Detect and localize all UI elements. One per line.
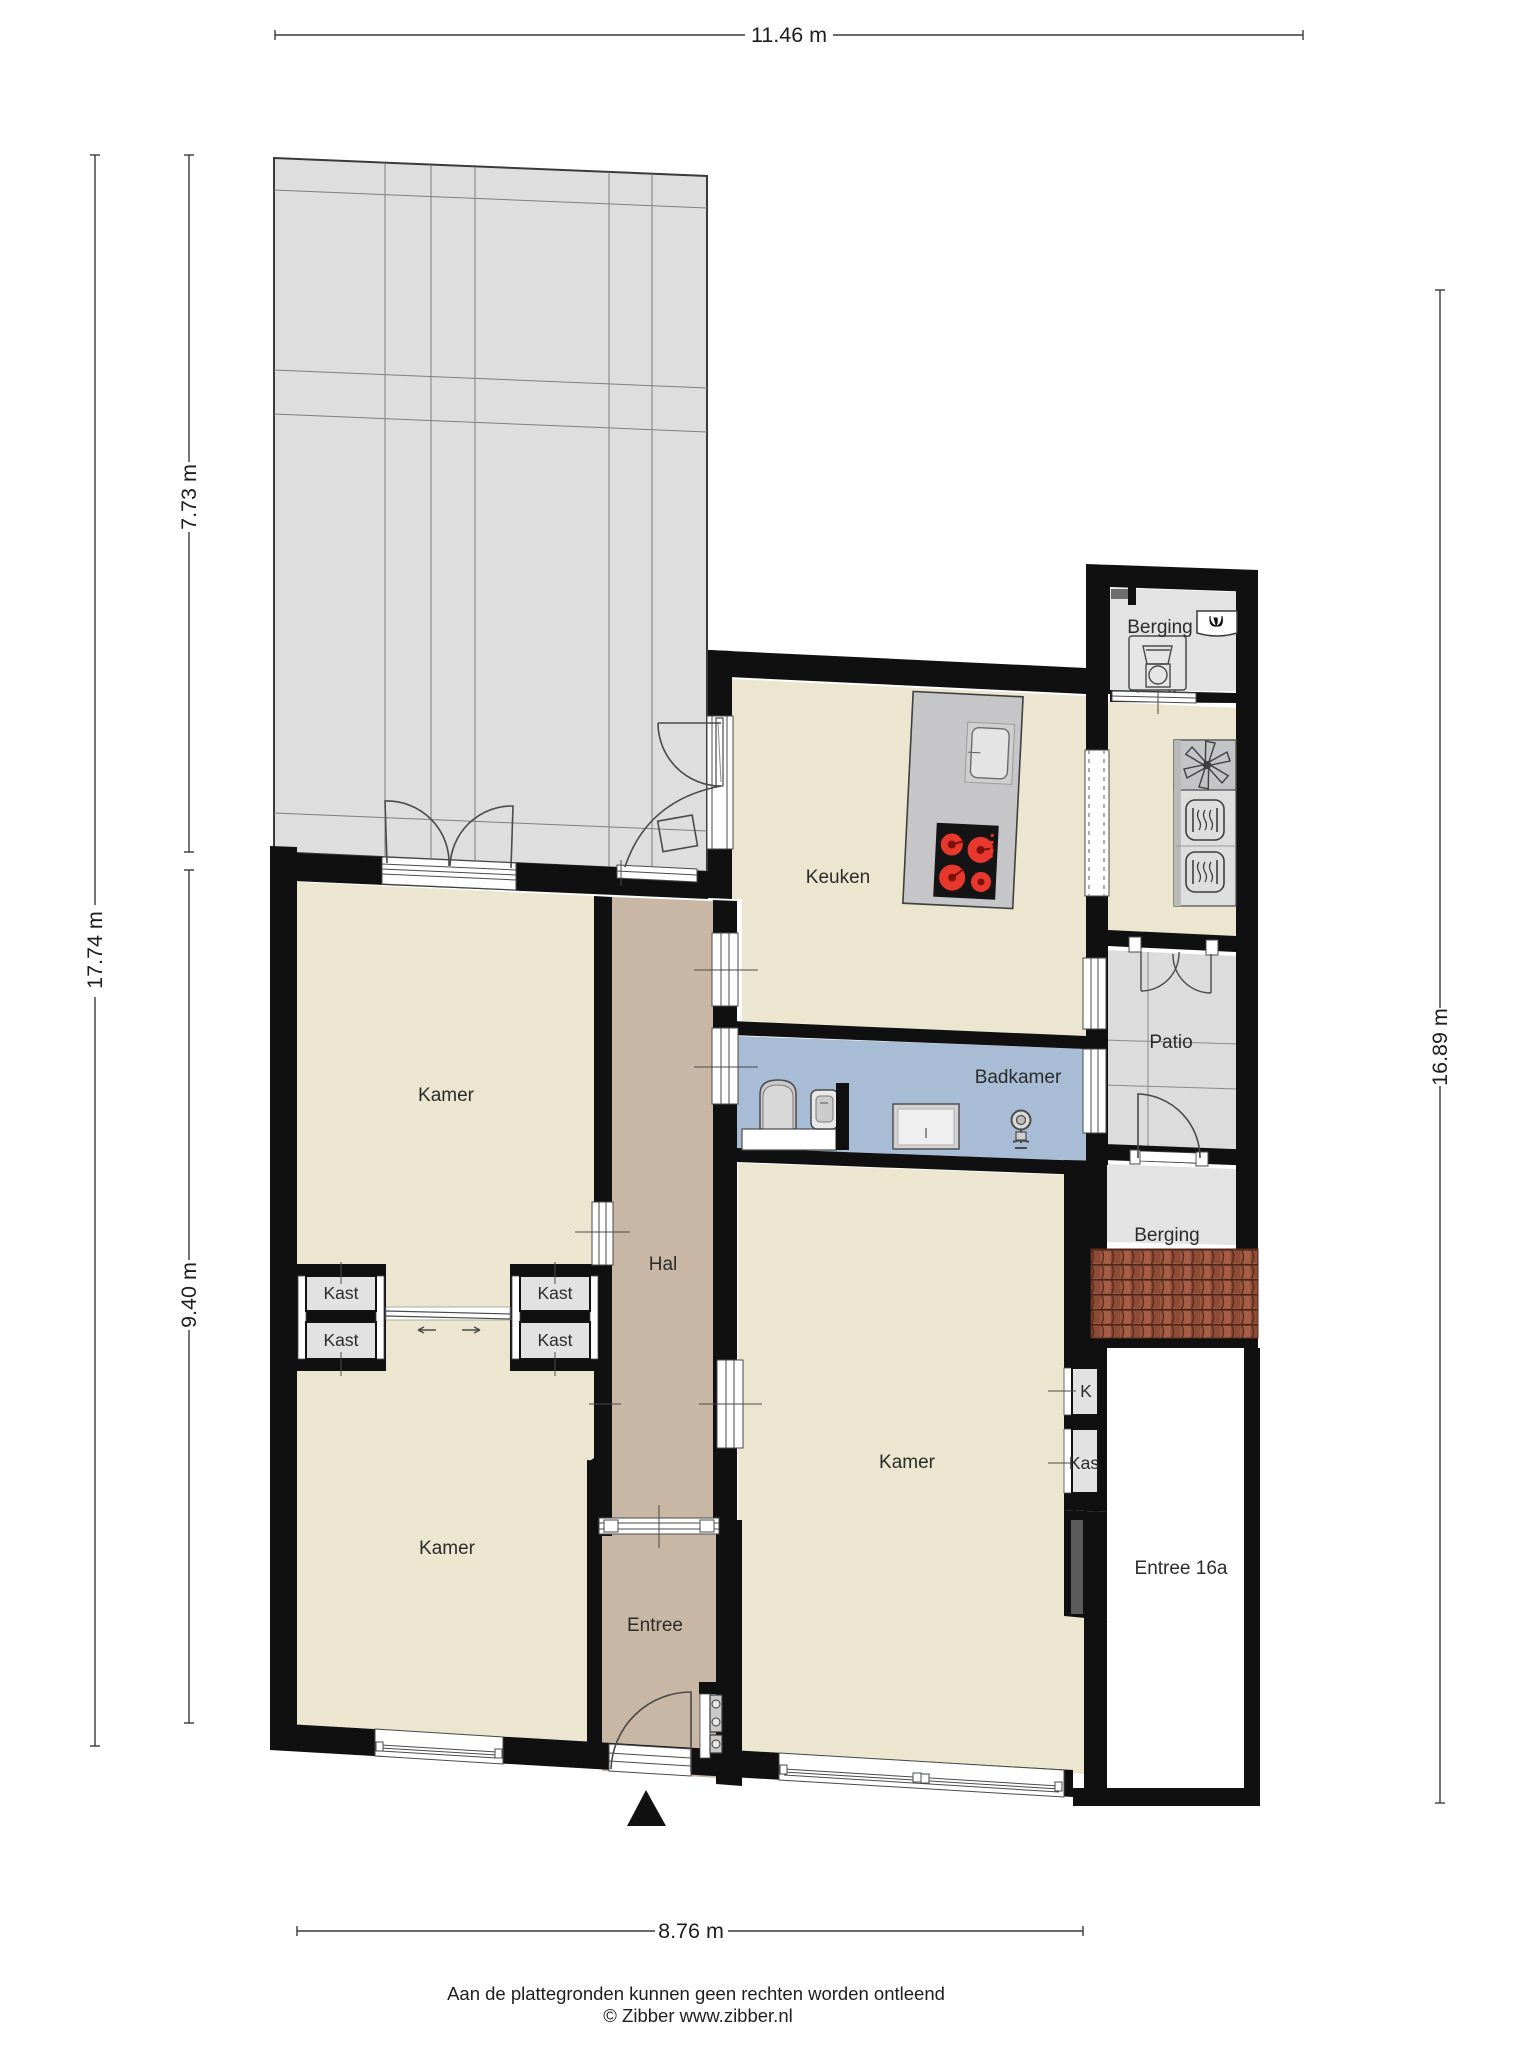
svg-text:Entree: Entree [627,1615,683,1636]
svg-text:17.74 m: 17.74 m [83,911,107,989]
svg-text:Aan de plattegronden kunnen ge: Aan de plattegronden kunnen geen rechten… [447,1983,945,2004]
svg-text:Kast: Kast [323,1283,358,1303]
svg-text:7.73 m: 7.73 m [177,464,201,530]
svg-text:Kast: Kast [323,1330,358,1350]
svg-text:Kas: Kas [1069,1453,1099,1473]
svg-text:Kamer: Kamer [879,1452,936,1473]
svg-text:Kamer: Kamer [418,1085,475,1106]
svg-text:Badkamer: Badkamer [975,1067,1062,1088]
svg-text:Keuken: Keuken [806,867,870,888]
svg-text:Kast: Kast [537,1330,572,1350]
svg-text:© Zibber www.zibber.nl: © Zibber www.zibber.nl [603,2005,792,2026]
svg-text:11.46 m: 11.46 m [751,23,827,47]
svg-text:Kamer: Kamer [419,1538,476,1559]
svg-text:Berging: Berging [1127,617,1193,638]
svg-text:9.40 m: 9.40 m [177,1262,201,1328]
svg-text:Entree 16a: Entree 16a [1135,1558,1228,1579]
svg-text:Hal: Hal [649,1254,678,1275]
svg-text:Berging: Berging [1134,1225,1200,1246]
svg-text:8.76 m: 8.76 m [658,1919,724,1943]
svg-text:Patio: Patio [1149,1032,1192,1053]
svg-text:K: K [1080,1381,1092,1401]
svg-text:16.89 m: 16.89 m [1428,1008,1452,1086]
svg-text:Kast: Kast [537,1283,572,1303]
